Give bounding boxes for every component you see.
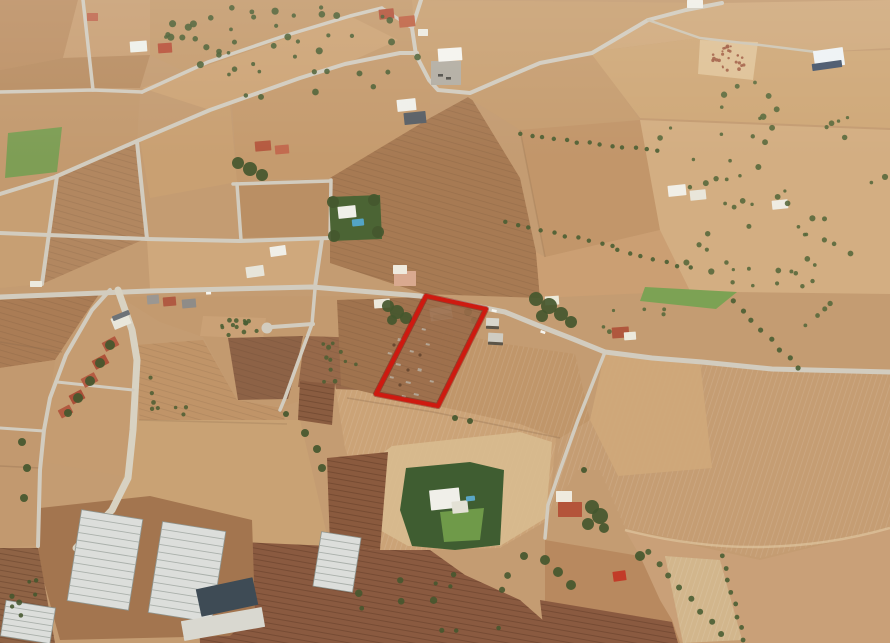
tree-row-tree xyxy=(733,602,738,607)
tree xyxy=(105,340,115,350)
tree-row-tree xyxy=(718,631,724,637)
trees-bottom-tree xyxy=(434,581,438,585)
olives-band-tree xyxy=(151,400,156,405)
tree-row-tree xyxy=(728,590,733,595)
grove-ne-tree xyxy=(713,176,718,181)
trees-bottom-tree xyxy=(397,577,403,583)
satellite-map-figure xyxy=(0,0,890,643)
grove-ne-tree xyxy=(740,198,746,204)
tree xyxy=(592,508,608,524)
tree-row-tree xyxy=(741,638,746,643)
tree xyxy=(536,310,548,322)
grove-ne2-tree xyxy=(800,284,804,288)
plot-rubble-dark xyxy=(398,383,401,386)
grove-ne-tree xyxy=(755,164,761,170)
plot-rubble-dark xyxy=(392,343,395,346)
tree xyxy=(520,552,528,560)
tree xyxy=(565,316,577,328)
trees-bottom-tree xyxy=(454,628,459,633)
tree-row-tree xyxy=(651,257,655,261)
tree-row-tree xyxy=(576,235,580,239)
grove-ne-tree xyxy=(723,202,727,206)
tree-row-tree xyxy=(675,264,679,268)
culdesac-bulb xyxy=(262,323,273,334)
grove-ne-tree xyxy=(705,248,709,252)
building xyxy=(624,332,637,341)
grove-ne-tree xyxy=(725,177,729,181)
trees-bottom-tree xyxy=(504,572,511,579)
plot-rubble-dark xyxy=(418,353,421,356)
tree xyxy=(553,567,563,577)
grove-parcel-tree xyxy=(321,342,325,346)
greenhouse xyxy=(0,600,55,643)
grove-parcel-tree xyxy=(326,345,331,350)
tree xyxy=(318,464,326,472)
haze-overlay xyxy=(0,0,890,160)
building xyxy=(393,265,407,274)
trees-bottom-tree xyxy=(451,572,456,577)
tree xyxy=(467,418,473,424)
grove-ne-tree xyxy=(809,215,815,221)
tree xyxy=(73,393,83,403)
tree-row-tree xyxy=(516,223,520,227)
trees-sw-tree xyxy=(16,599,22,605)
trees-bottom-tree xyxy=(355,590,362,597)
building xyxy=(690,189,707,201)
tree-row-tree xyxy=(676,585,682,591)
sparse-mid-tree xyxy=(662,307,666,311)
building xyxy=(182,298,197,308)
trees-bottom-tree xyxy=(430,597,437,604)
trees-bottom-tree xyxy=(496,626,501,631)
vehicle xyxy=(206,292,211,295)
tree xyxy=(256,169,268,181)
tree xyxy=(368,194,380,206)
grove-ne2-tree xyxy=(775,281,779,285)
grove-ne-tree xyxy=(797,225,801,229)
greenhouse xyxy=(313,532,361,593)
tree-row-tree xyxy=(777,347,782,352)
tree xyxy=(581,467,587,473)
tree-row-tree xyxy=(739,625,744,630)
tree-row-tree xyxy=(600,241,604,245)
grove-ne-tree xyxy=(805,256,811,262)
tree-row-tree xyxy=(720,553,725,558)
tree-row-tree xyxy=(610,244,614,248)
grove-parcel-tree xyxy=(333,379,338,384)
trees-bottom-tree xyxy=(359,606,364,611)
tree xyxy=(95,358,105,368)
grove-ne-tree xyxy=(882,174,888,180)
building xyxy=(667,184,686,197)
grove-mid-tree xyxy=(234,318,239,323)
tree-row-tree xyxy=(552,230,556,234)
tree xyxy=(85,376,95,386)
tree-row-tree xyxy=(665,260,669,264)
tree-row-tree xyxy=(697,609,703,615)
grove-ne-tree xyxy=(705,231,710,236)
tree xyxy=(529,292,543,306)
trees-sw-tree xyxy=(9,594,14,599)
trees-sw-tree xyxy=(10,604,14,608)
tree-row-tree xyxy=(526,225,530,229)
tree-row-tree xyxy=(725,578,730,583)
trees-sw-tree xyxy=(34,578,38,582)
tree xyxy=(20,494,28,502)
building xyxy=(558,502,582,517)
sparse-mid-tree xyxy=(662,312,666,316)
grove-mid-tree xyxy=(235,325,239,329)
lawn-villa-c xyxy=(440,508,484,542)
grove-ne-tree xyxy=(746,224,751,229)
grove-mid-tree xyxy=(226,333,230,337)
tree xyxy=(23,464,31,472)
olives-band-tree xyxy=(150,391,154,395)
grove-ne-tree xyxy=(724,260,728,264)
building xyxy=(337,205,356,219)
tree xyxy=(540,555,550,565)
grove-ne-tree xyxy=(750,203,753,206)
tree xyxy=(635,551,645,561)
grove-ne-tree xyxy=(688,185,692,189)
tree-row-tree xyxy=(731,298,736,303)
grove-parcel-tree xyxy=(339,350,343,354)
grove-ne-tree xyxy=(822,216,827,221)
grove-ne2-tree xyxy=(803,323,807,327)
tree xyxy=(452,415,458,421)
trees-sw-tree xyxy=(27,580,31,584)
tree-row-tree xyxy=(748,318,753,323)
building xyxy=(612,570,626,582)
tree-row-tree xyxy=(709,619,715,625)
tree xyxy=(372,226,384,238)
grove-ne-tree xyxy=(738,174,741,177)
tree-row-tree xyxy=(758,327,763,332)
tree-row-tree xyxy=(645,549,651,555)
grove-ne-tree xyxy=(703,180,709,186)
map-canvas[interactable] xyxy=(0,0,890,643)
tree-row-tree xyxy=(735,615,740,620)
sparse-mid-tree xyxy=(642,307,646,311)
grove-parcel-tree xyxy=(331,341,335,345)
olives-band-tree xyxy=(174,406,178,410)
tree xyxy=(327,196,339,208)
tree-row-tree xyxy=(657,561,663,567)
tree xyxy=(566,580,576,590)
tree xyxy=(18,438,26,446)
tree xyxy=(283,411,289,417)
grove-parcel-tree xyxy=(328,358,332,362)
grove-ne2-tree xyxy=(827,301,832,306)
building xyxy=(556,491,572,502)
grove-parcel-tree xyxy=(354,363,358,367)
tree-row-tree xyxy=(628,251,632,255)
tree xyxy=(313,445,321,453)
grove-ne2-tree xyxy=(810,279,814,283)
grove-ne-tree xyxy=(696,242,701,247)
grove-ne-tree xyxy=(708,268,714,274)
swimming-pool xyxy=(466,496,475,502)
tree xyxy=(243,162,257,176)
grove-ne-tree xyxy=(775,268,781,274)
atmospheric-haze xyxy=(0,0,890,160)
tree xyxy=(582,518,594,530)
tree-row-tree xyxy=(795,365,800,370)
grove-ne-tree xyxy=(732,205,737,210)
grove-ne-tree xyxy=(832,242,837,247)
trees-bottom-tree xyxy=(439,628,444,633)
building xyxy=(163,296,177,306)
grove-ne-tree xyxy=(813,263,817,267)
field-grove xyxy=(200,316,266,339)
tree-row-tree xyxy=(615,248,619,252)
tree-row-tree xyxy=(587,238,591,242)
grove-ne-tree xyxy=(747,267,751,271)
grove-ne-tree xyxy=(732,268,735,271)
tree-row-tree xyxy=(724,566,729,571)
grove-parcel-tree xyxy=(344,360,347,363)
grove-parcel-tree xyxy=(322,380,326,384)
trees-sw-tree xyxy=(33,592,37,596)
olives-band-tree xyxy=(184,405,188,409)
trees-bottom-tree xyxy=(398,598,405,605)
sparse-mid-tree xyxy=(602,325,606,329)
building xyxy=(30,281,42,287)
building xyxy=(451,500,468,514)
sparse-mid-tree xyxy=(612,309,615,312)
grove-ne-tree xyxy=(783,189,786,192)
grove-mid-tree xyxy=(227,318,232,323)
tree-row-tree xyxy=(563,234,567,238)
sparse-mid-tree xyxy=(607,329,612,334)
grove-ne-tree xyxy=(730,280,734,284)
olives-band-tree xyxy=(156,406,160,410)
grove-mid-tree xyxy=(231,323,235,327)
tree-row-tree xyxy=(689,265,693,269)
olives-band-tree xyxy=(150,407,154,411)
tree-row-tree xyxy=(665,573,671,579)
grove-ne-tree xyxy=(870,181,874,185)
tree xyxy=(387,315,397,325)
tree-row-tree xyxy=(741,308,746,313)
trees-sw-tree xyxy=(19,613,24,618)
grove-parcel-tree xyxy=(329,368,333,372)
plot-rubble-dark xyxy=(406,368,409,371)
grove-ne2-tree xyxy=(815,313,820,318)
trees-bottom-tree xyxy=(448,584,452,588)
tree-row-tree xyxy=(503,220,507,224)
grove-ne2-tree xyxy=(822,306,827,311)
grove-ne-tree xyxy=(848,251,854,257)
building xyxy=(147,294,160,304)
tree-row-tree xyxy=(638,254,642,258)
grove-mid-tree xyxy=(246,319,251,324)
field xyxy=(237,179,330,238)
tree xyxy=(328,230,340,242)
tree-row-tree xyxy=(769,337,774,342)
grove-mid-tree xyxy=(254,329,258,333)
swimming-pool xyxy=(352,218,365,226)
grove-ne-tree xyxy=(822,237,827,242)
olives-band-tree xyxy=(181,412,185,416)
tree xyxy=(301,429,309,437)
grove-ne-tree xyxy=(683,259,689,265)
grove-ne-tree xyxy=(751,284,755,288)
tree-row-tree xyxy=(688,596,694,602)
grove-parcel-tree xyxy=(324,355,328,359)
tree-row-tree xyxy=(538,228,542,232)
grove-mid-tree xyxy=(242,330,247,335)
tree-row-tree xyxy=(788,355,793,360)
grove-ne-tree xyxy=(803,233,807,237)
tree xyxy=(64,409,72,417)
tree xyxy=(599,523,609,533)
grove-ne-tree xyxy=(775,194,781,200)
olives-band-tree xyxy=(149,376,153,380)
grove-ne-tree xyxy=(785,200,791,206)
grove-ne2-tree xyxy=(794,271,799,276)
grove-mid-tree xyxy=(220,324,223,327)
grove-ne2-tree xyxy=(789,269,793,273)
trees-bottom-tree xyxy=(499,587,505,593)
field xyxy=(147,239,322,289)
field-vineyard-rows xyxy=(298,381,335,425)
